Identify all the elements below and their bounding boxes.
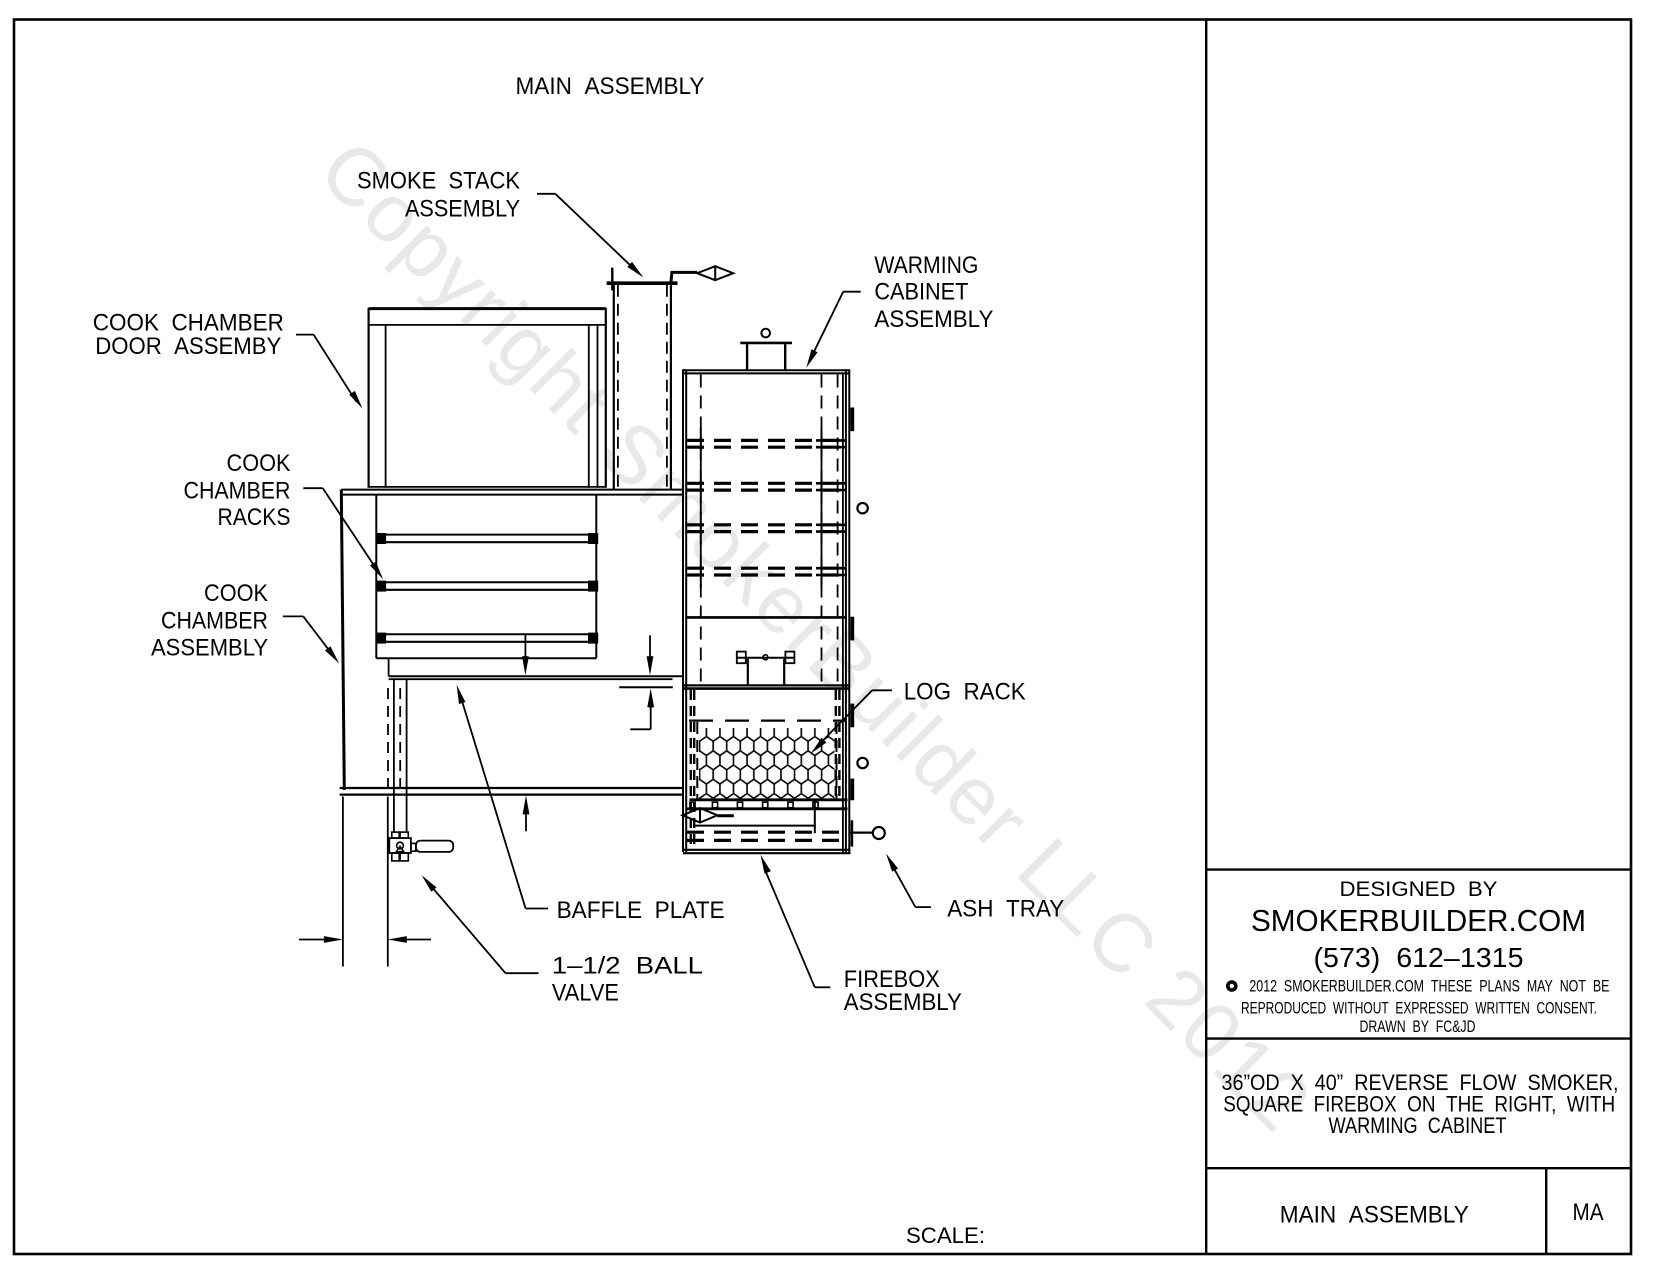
svg-text:MA: MA — [1573, 1199, 1604, 1226]
svg-text:RACKS: RACKS — [218, 504, 291, 531]
svg-text:DRAWN BY FC&JD: DRAWN BY FC&JD — [1360, 1017, 1476, 1036]
svg-text:ASSEMBLY: ASSEMBLY — [405, 196, 520, 223]
svg-text:ASSEMBLY: ASSEMBLY — [151, 634, 268, 661]
svg-text:Copyright SmokerBuilder LLC 20: Copyright SmokerBuilder LLC 2012 — [302, 123, 1328, 1149]
svg-text:WARMING CABINET: WARMING CABINET — [1329, 1113, 1507, 1138]
svg-text:(573) 612–1315: (573) 612–1315 — [1314, 942, 1524, 973]
svg-text:WARMING: WARMING — [874, 252, 978, 279]
svg-text:SCALE:: SCALE: — [906, 1223, 985, 1248]
svg-text:CABINET: CABINET — [874, 279, 968, 306]
svg-text:CHAMBER: CHAMBER — [184, 478, 291, 505]
svg-text:COOK: COOK — [204, 580, 268, 607]
svg-text:DESIGNED BY: DESIGNED BY — [1340, 878, 1498, 901]
svg-text:SMOKE STACK: SMOKE STACK — [357, 167, 520, 194]
svg-text:MAIN ASSEMBLY: MAIN ASSEMBLY — [516, 73, 705, 100]
svg-text:ASSEMBLY: ASSEMBLY — [844, 989, 962, 1016]
svg-text:ASSEMBLY: ASSEMBLY — [874, 306, 993, 333]
svg-text:CHAMBER: CHAMBER — [161, 608, 268, 635]
svg-text:2012 SMOKERBUILDER.COM THESE: 2012 SMOKERBUILDER.COM THESE PLANS MAY N… — [1249, 977, 1609, 996]
svg-text:REPRODUCED WITHOUT EXPRESSED: REPRODUCED WITHOUT EXPRESSED WRITTEN CON… — [1241, 999, 1597, 1018]
svg-text:LOG RACK: LOG RACK — [904, 679, 1026, 706]
svg-text:DOOR ASSEMBY: DOOR ASSEMBY — [95, 333, 281, 360]
svg-text:MAIN ASSEMBLY: MAIN ASSEMBLY — [1280, 1202, 1469, 1229]
svg-text:VALVE: VALVE — [552, 979, 619, 1006]
svg-text:SMOKERBUILDER.COM: SMOKERBUILDER.COM — [1251, 903, 1586, 938]
svg-text:COOK: COOK — [227, 450, 291, 477]
svg-text:1–1/2 BALL: 1–1/2 BALL — [552, 952, 703, 979]
svg-text:BAFFLE PLATE: BAFFLE PLATE — [557, 897, 725, 924]
svg-text:ASH TRAY: ASH TRAY — [947, 896, 1064, 923]
